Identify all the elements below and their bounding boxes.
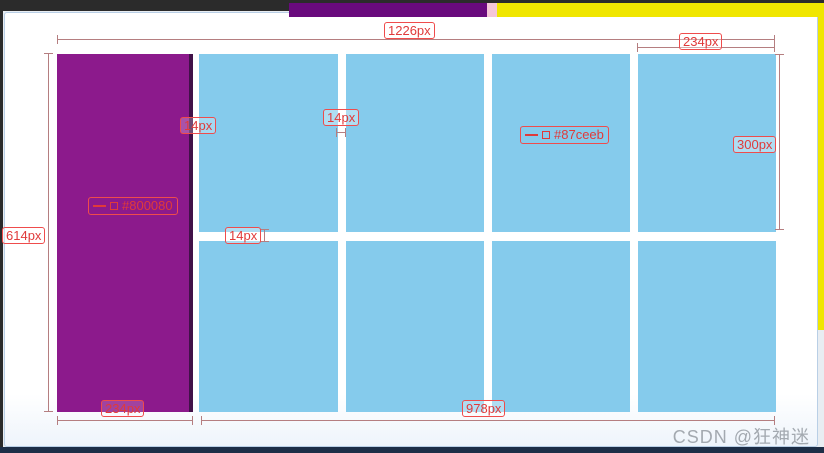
- dimension-label-sidebar-width: 234px: [101, 400, 144, 417]
- swatch-square-icon: [542, 131, 550, 139]
- dimension-label-sidebar-gap: 14px: [180, 117, 216, 134]
- dimension-label-row-gap: 14px: [225, 227, 261, 244]
- dimension-label-column-width: 234px: [679, 33, 722, 50]
- dimension-line-row-gap: [264, 229, 265, 242]
- grid-box: [346, 54, 484, 232]
- grid-box: [346, 241, 484, 412]
- grid-box: [492, 241, 630, 412]
- swatch-square-icon: [110, 202, 118, 210]
- grid-box: [199, 54, 338, 232]
- grid-box: [638, 241, 776, 412]
- csdn-watermark: CSDN @狂神迷: [673, 423, 810, 449]
- color-hex-label: #800080: [122, 199, 173, 213]
- sidebar-box: [57, 54, 193, 412]
- dimension-label-box-height: 300px: [733, 136, 776, 153]
- color-annotation-box: #87ceeb: [520, 126, 609, 144]
- dimension-label-column-gap: 14px: [323, 109, 359, 126]
- dimension-line-left-height: [48, 53, 49, 412]
- dimension-line-column-gap: [336, 132, 346, 133]
- dimension-line-sidebar-width: [57, 420, 193, 421]
- dimension-label-content-width: 978px: [462, 400, 505, 417]
- dimension-line-total-width: [57, 39, 775, 40]
- dimension-label-left-height: 614px: [2, 227, 45, 244]
- top-strip-purple: [289, 3, 487, 17]
- top-strip-pink: [487, 3, 497, 17]
- dimension-label-total-width: 1226px: [384, 22, 435, 39]
- top-strip-yellow: [497, 3, 824, 17]
- grid-box: [199, 241, 338, 412]
- color-annotation-sidebar: #800080: [88, 197, 178, 215]
- color-hex-label: #87ceeb: [554, 128, 604, 142]
- dimension-line-content-width: [201, 420, 775, 421]
- left-edge-strip: [0, 0, 3, 448]
- right-edge-yellow-strip: [818, 17, 824, 330]
- screenshot-root: 1226px 234px 614px 300px 14px 14px 14px …: [0, 0, 824, 453]
- dash-icon: [93, 205, 106, 207]
- dash-icon: [525, 134, 538, 136]
- dimension-line-box-height: [779, 54, 780, 230]
